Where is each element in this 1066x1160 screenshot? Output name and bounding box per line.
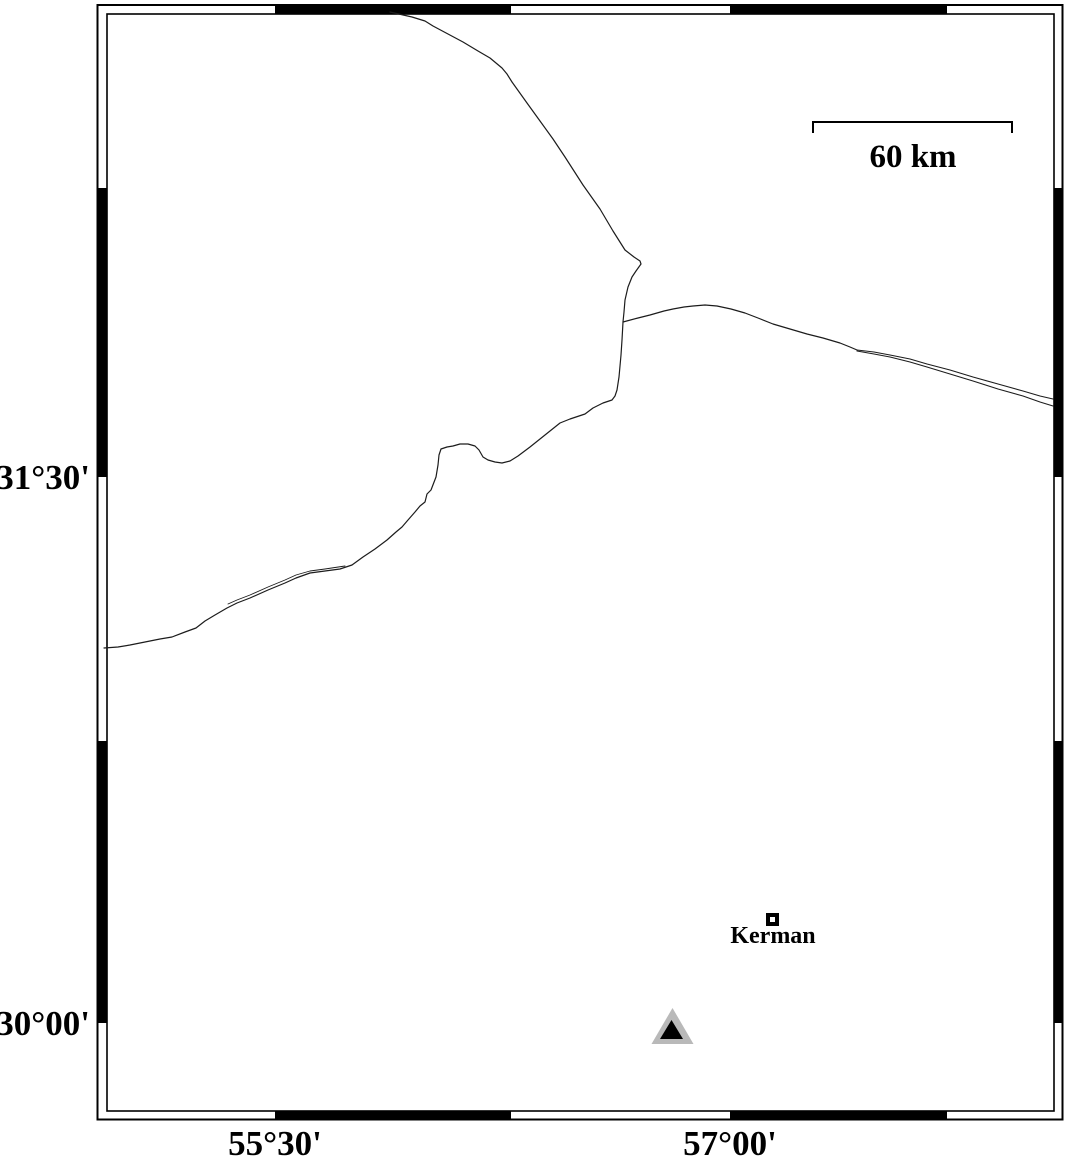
border-line-east [623, 305, 857, 350]
station-marker [652, 1008, 694, 1044]
lat-annotation-lower: 30°00' [0, 1004, 90, 1043]
map-page: 60 km 31°30' 30°00' 55°30' 57°00' Kerman [0, 0, 1066, 1160]
lon-annotation-east: 57°00' [683, 1124, 777, 1160]
map-canvas: 60 km 31°30' 30°00' 55°30' 57°00' Kerman [0, 0, 1066, 1160]
lat-annotation-upper: 31°30' [0, 458, 90, 497]
frame-inner-rect [107, 14, 1054, 1111]
scale-bar: 60 km [813, 122, 1012, 175]
lon-annotation-west: 55°30' [228, 1124, 322, 1160]
border-line-north-to-southwest [104, 12, 641, 648]
border-line-east-lower-strand [857, 351, 1053, 406]
city-marker-kerman: Kerman [730, 915, 815, 949]
frame-tick-segment-top-2 [730, 5, 947, 14]
border-line-east-upper-strand [857, 350, 1053, 399]
scale-bar-rule [813, 122, 1012, 133]
line-features [104, 12, 1053, 648]
city-label: Kerman [730, 923, 815, 949]
scale-bar-label: 60 km [869, 139, 956, 175]
border-line-southwest-parallel [228, 566, 345, 604]
